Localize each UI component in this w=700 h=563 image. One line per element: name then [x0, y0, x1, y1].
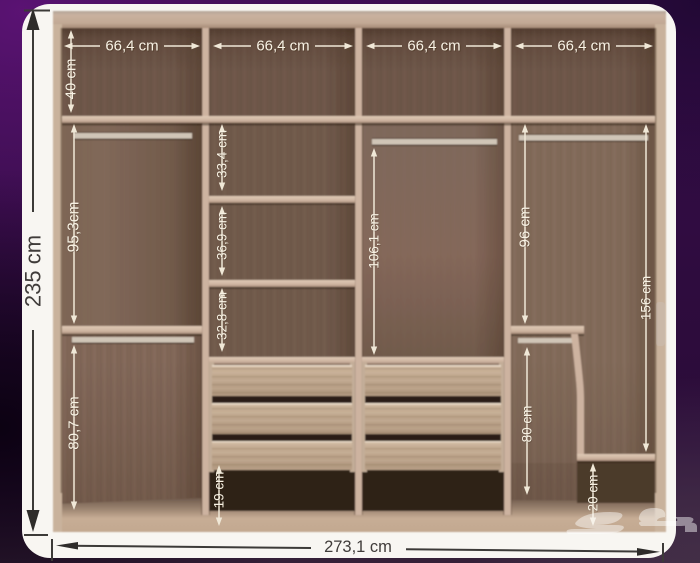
svg-text:33,4 cm: 33,4 cm	[215, 130, 230, 178]
svg-text:156 cm: 156 cm	[639, 276, 654, 320]
svg-text:66,4 cm: 66,4 cm	[105, 38, 158, 55]
svg-text:20 cm: 20 cm	[586, 475, 601, 512]
svg-text:96 cm: 96 cm	[517, 207, 534, 248]
svg-text:19 cm: 19 cm	[212, 472, 227, 509]
svg-text:235 cm: 235 cm	[21, 235, 46, 307]
svg-text:66,4 cm: 66,4 cm	[256, 38, 309, 55]
svg-text:95,3cm: 95,3cm	[66, 202, 83, 253]
svg-text:40 cm: 40 cm	[63, 59, 80, 100]
svg-text:80 cm: 80 cm	[520, 406, 535, 443]
svg-text:106,1 cm: 106,1 cm	[367, 213, 382, 269]
svg-text:273,1 cm: 273,1 cm	[324, 538, 392, 556]
svg-text:80,7 cm: 80,7 cm	[66, 396, 83, 449]
svg-text:36,9 cm: 36,9 cm	[215, 212, 230, 260]
svg-text:66,4 cm: 66,4 cm	[407, 38, 460, 55]
svg-text:66,4 cm: 66,4 cm	[557, 38, 610, 55]
svg-text:32,8 cm: 32,8 cm	[215, 292, 230, 340]
